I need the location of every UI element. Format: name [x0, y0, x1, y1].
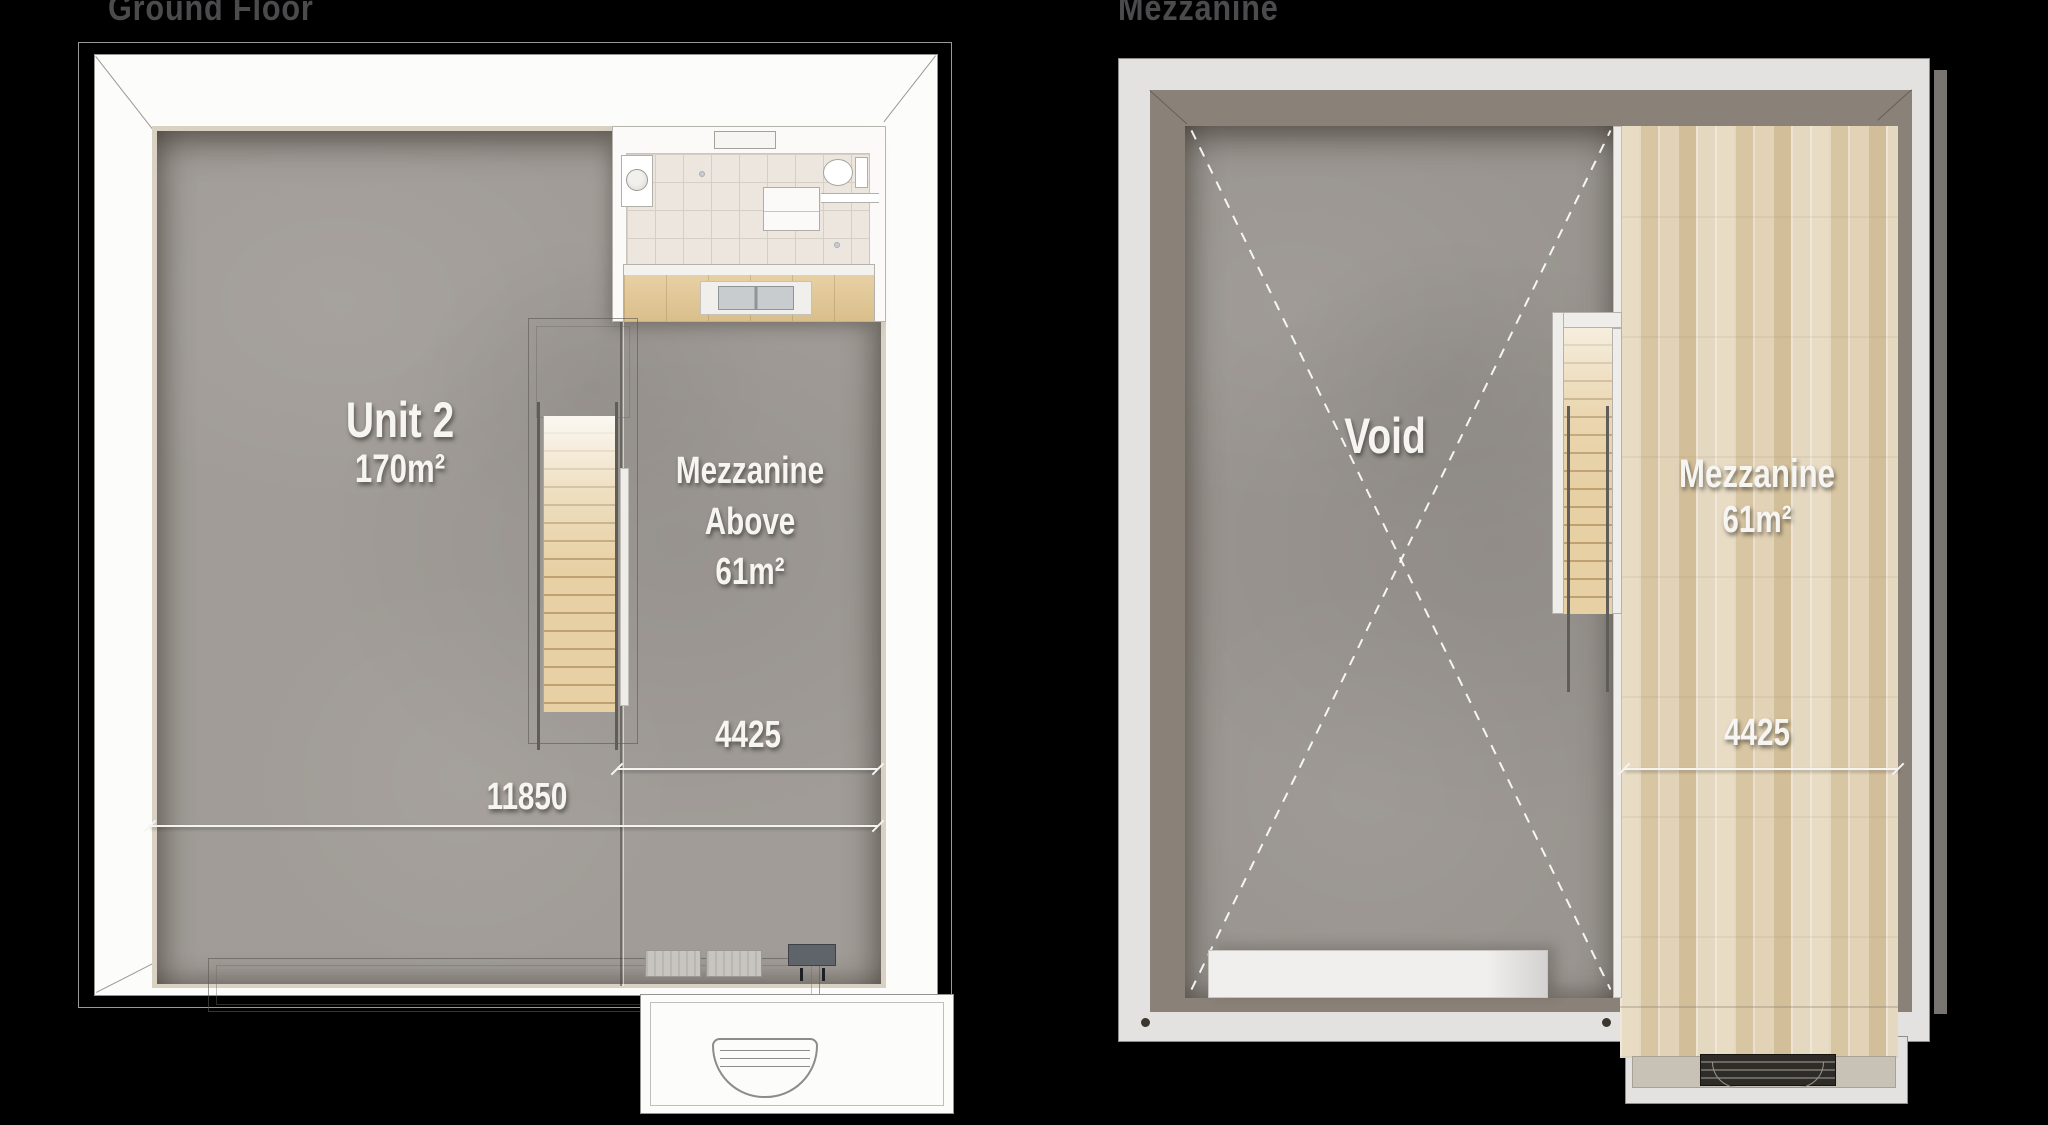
mezzanine-plan: Void Mezzanine 61m² 4425	[0, 0, 2048, 1125]
stair-handrail	[1567, 406, 1570, 692]
mezzanine-area-label: 61m²	[1679, 501, 1835, 541]
stairwell-wall-right	[1612, 328, 1622, 614]
dimension-text-4425: 4425	[1679, 714, 1835, 754]
floorplan-stage: Ground Floor Mezzanine	[0, 0, 2048, 1125]
roller-door-housing	[1208, 950, 1548, 998]
drain-hole	[1141, 1018, 1150, 1027]
floor-seam	[1620, 1006, 1898, 1008]
stairwell-wall-left	[1552, 312, 1564, 614]
drain-hole	[1602, 1018, 1611, 1027]
downpipe-strip	[1934, 70, 1947, 1014]
stair-handrail	[1606, 406, 1609, 692]
void-label: Void	[1307, 410, 1463, 463]
dimension-line-4425	[1624, 768, 1898, 770]
mezzanine-name-label: Mezzanine	[1679, 453, 1835, 495]
doormat-curve	[1712, 1062, 1824, 1088]
mezzanine-wood-floor	[1620, 126, 1898, 1058]
